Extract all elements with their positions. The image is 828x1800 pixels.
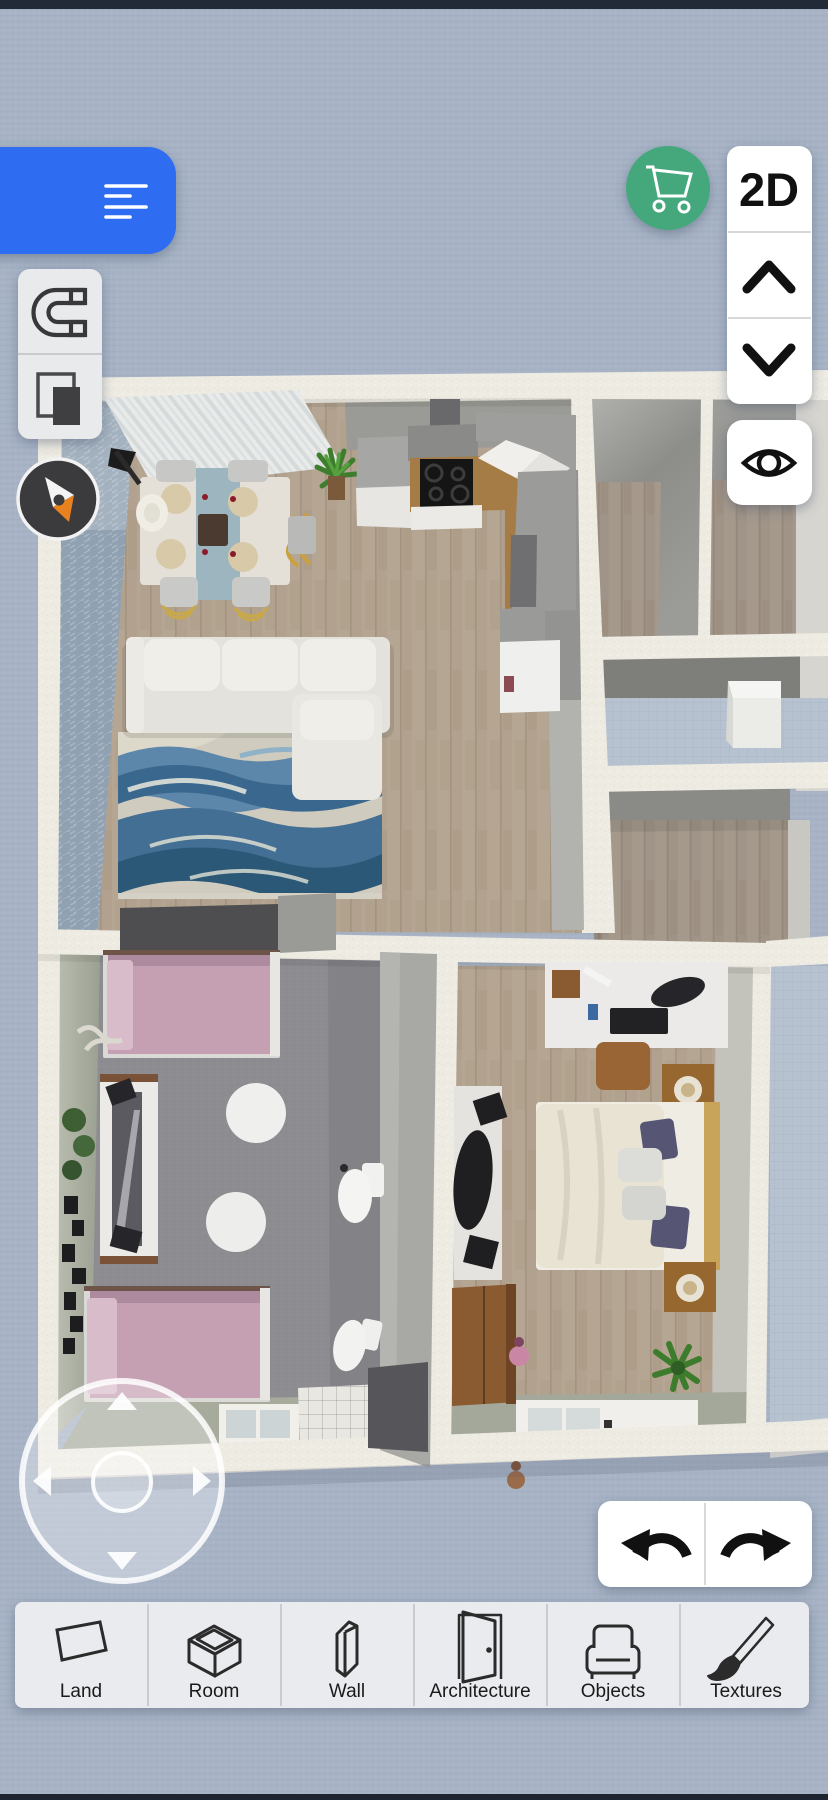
svg-text:Land: Land xyxy=(60,1681,102,1702)
svg-text:Objects: Objects xyxy=(581,1681,645,1702)
svg-text:Architecture: Architecture xyxy=(429,1681,530,1702)
svg-text:Room: Room xyxy=(189,1681,240,1702)
svg-text:Wall: Wall xyxy=(329,1681,365,1702)
svg-text:Textures: Textures xyxy=(710,1681,782,1702)
svg-text:2D: 2D xyxy=(739,163,799,216)
